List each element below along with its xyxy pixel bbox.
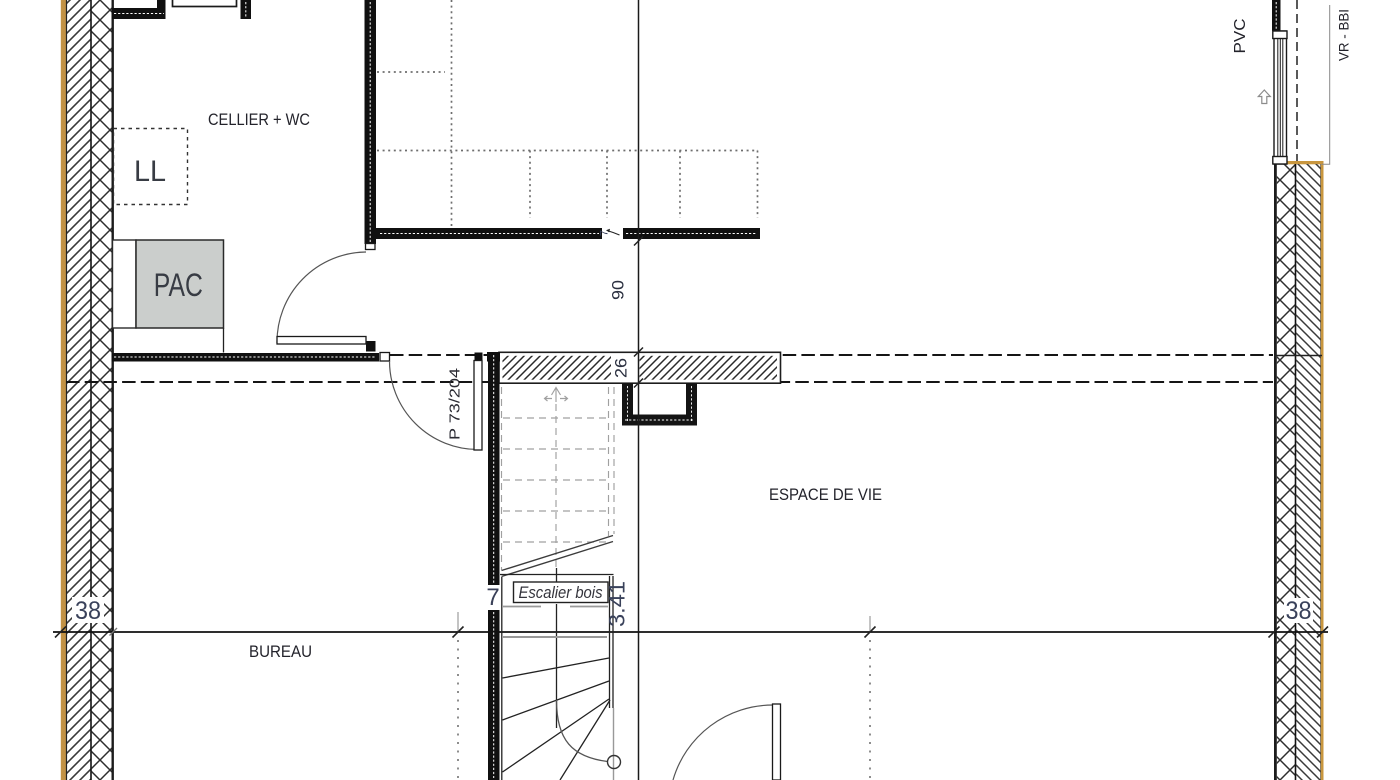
svg-text:26: 26 [613,358,631,378]
svg-text:ESPACE DE VIE: ESPACE DE VIE [769,486,882,504]
svg-text:3.41: 3.41 [605,581,630,627]
svg-text:38: 38 [75,597,101,625]
svg-text:7: 7 [486,584,499,611]
svg-text:VR - BBI: VR - BBI [1337,9,1352,61]
svg-text:BUREAU: BUREAU [249,643,312,661]
svg-text:Escalier bois: Escalier bois [519,583,603,602]
svg-text:90: 90 [610,280,628,300]
svg-text:38: 38 [1286,597,1312,625]
svg-text:PAC: PAC [154,267,203,303]
svg-text:PVC: PVC [1232,19,1249,54]
svg-text:CELLIER + WC: CELLIER + WC [208,111,310,129]
svg-text:LL: LL [134,155,166,188]
svg-text:P 73/204: P 73/204 [448,368,464,440]
